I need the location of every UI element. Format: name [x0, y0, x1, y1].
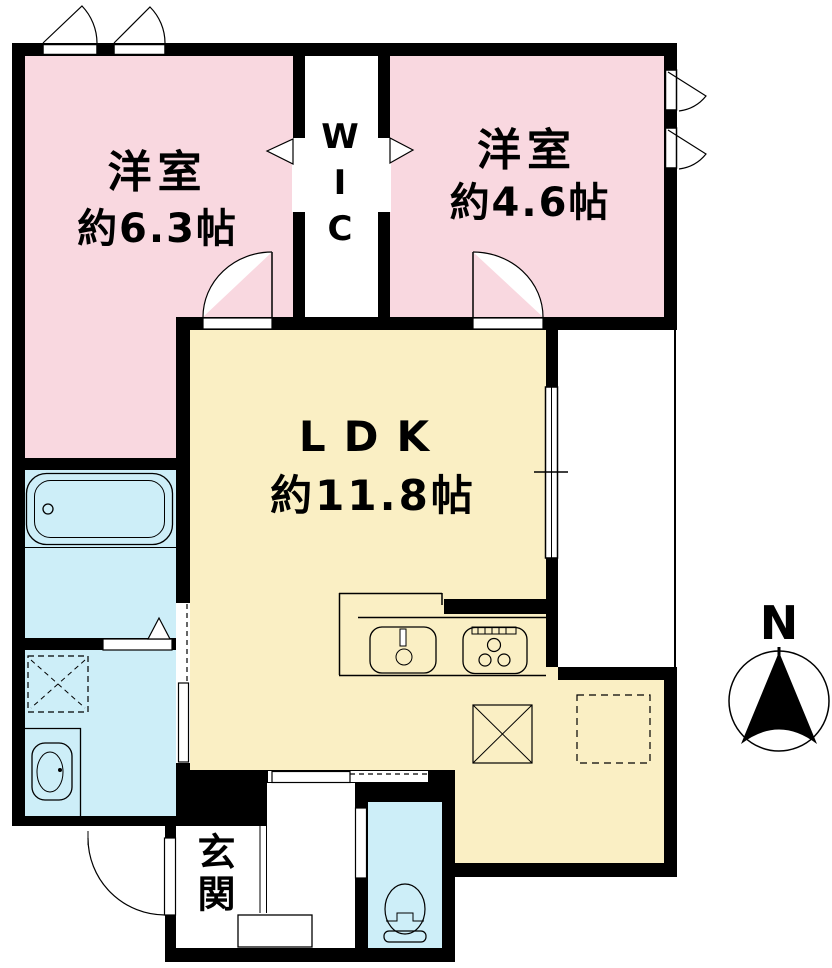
entrance-door-leaf	[165, 838, 176, 915]
entrance-label: 玄関	[199, 826, 241, 922]
toilet-seat-line	[386, 913, 424, 921]
bathtub-inner	[35, 481, 165, 538]
wic-opening-east	[377, 138, 391, 212]
bathtub-drain-icon	[43, 504, 53, 514]
toilet-bowl-icon	[385, 884, 425, 934]
window-swing-icon	[43, 6, 97, 43]
bedroom-east-label: 洋室	[398, 114, 656, 178]
door-swing-icon	[473, 252, 543, 317]
window	[114, 45, 165, 55]
sliding-door-leaf	[179, 683, 189, 762]
entrance-step	[238, 915, 312, 947]
bathtub-icon	[27, 474, 173, 545]
door-direction-icon	[148, 618, 170, 639]
bath-door	[103, 639, 172, 650]
stove-burner	[498, 654, 510, 666]
wic-opening-west	[292, 138, 306, 212]
door-swing-icon	[203, 252, 272, 317]
door-threshold	[203, 318, 272, 329]
window	[43, 45, 97, 55]
stove-burner	[479, 654, 491, 666]
refrigerator-space-icon	[577, 695, 650, 763]
wic-label: WIC	[322, 116, 360, 256]
toilet-door	[356, 808, 367, 878]
ldk-size: 約11.8帖	[228, 462, 518, 523]
vanity-bowl	[37, 752, 63, 792]
stove-burner	[488, 639, 501, 652]
window-swing-icon	[114, 7, 165, 43]
bedroom-west-size: 約6.3帖	[30, 196, 285, 254]
sliding-door-leaf	[272, 772, 350, 783]
bedroom-west-label: 洋室	[30, 136, 285, 200]
kitchen-sink-drain	[396, 649, 412, 665]
compass-north-label: N	[750, 596, 808, 650]
floor-plan: 洋室 約6.3帖 洋室 約4.6帖 LDK 約11.8帖 WIC 玄関 N	[0, 0, 832, 968]
door-threshold	[473, 318, 543, 329]
bedroom-east-size: 約4.6帖	[400, 170, 660, 228]
kitchen-faucet-icon	[400, 629, 406, 646]
entrance-door-swing-icon	[88, 838, 165, 915]
ldk-label: LDK	[240, 412, 506, 461]
vanity-faucet-icon	[58, 768, 62, 772]
toilet-base	[384, 931, 426, 942]
